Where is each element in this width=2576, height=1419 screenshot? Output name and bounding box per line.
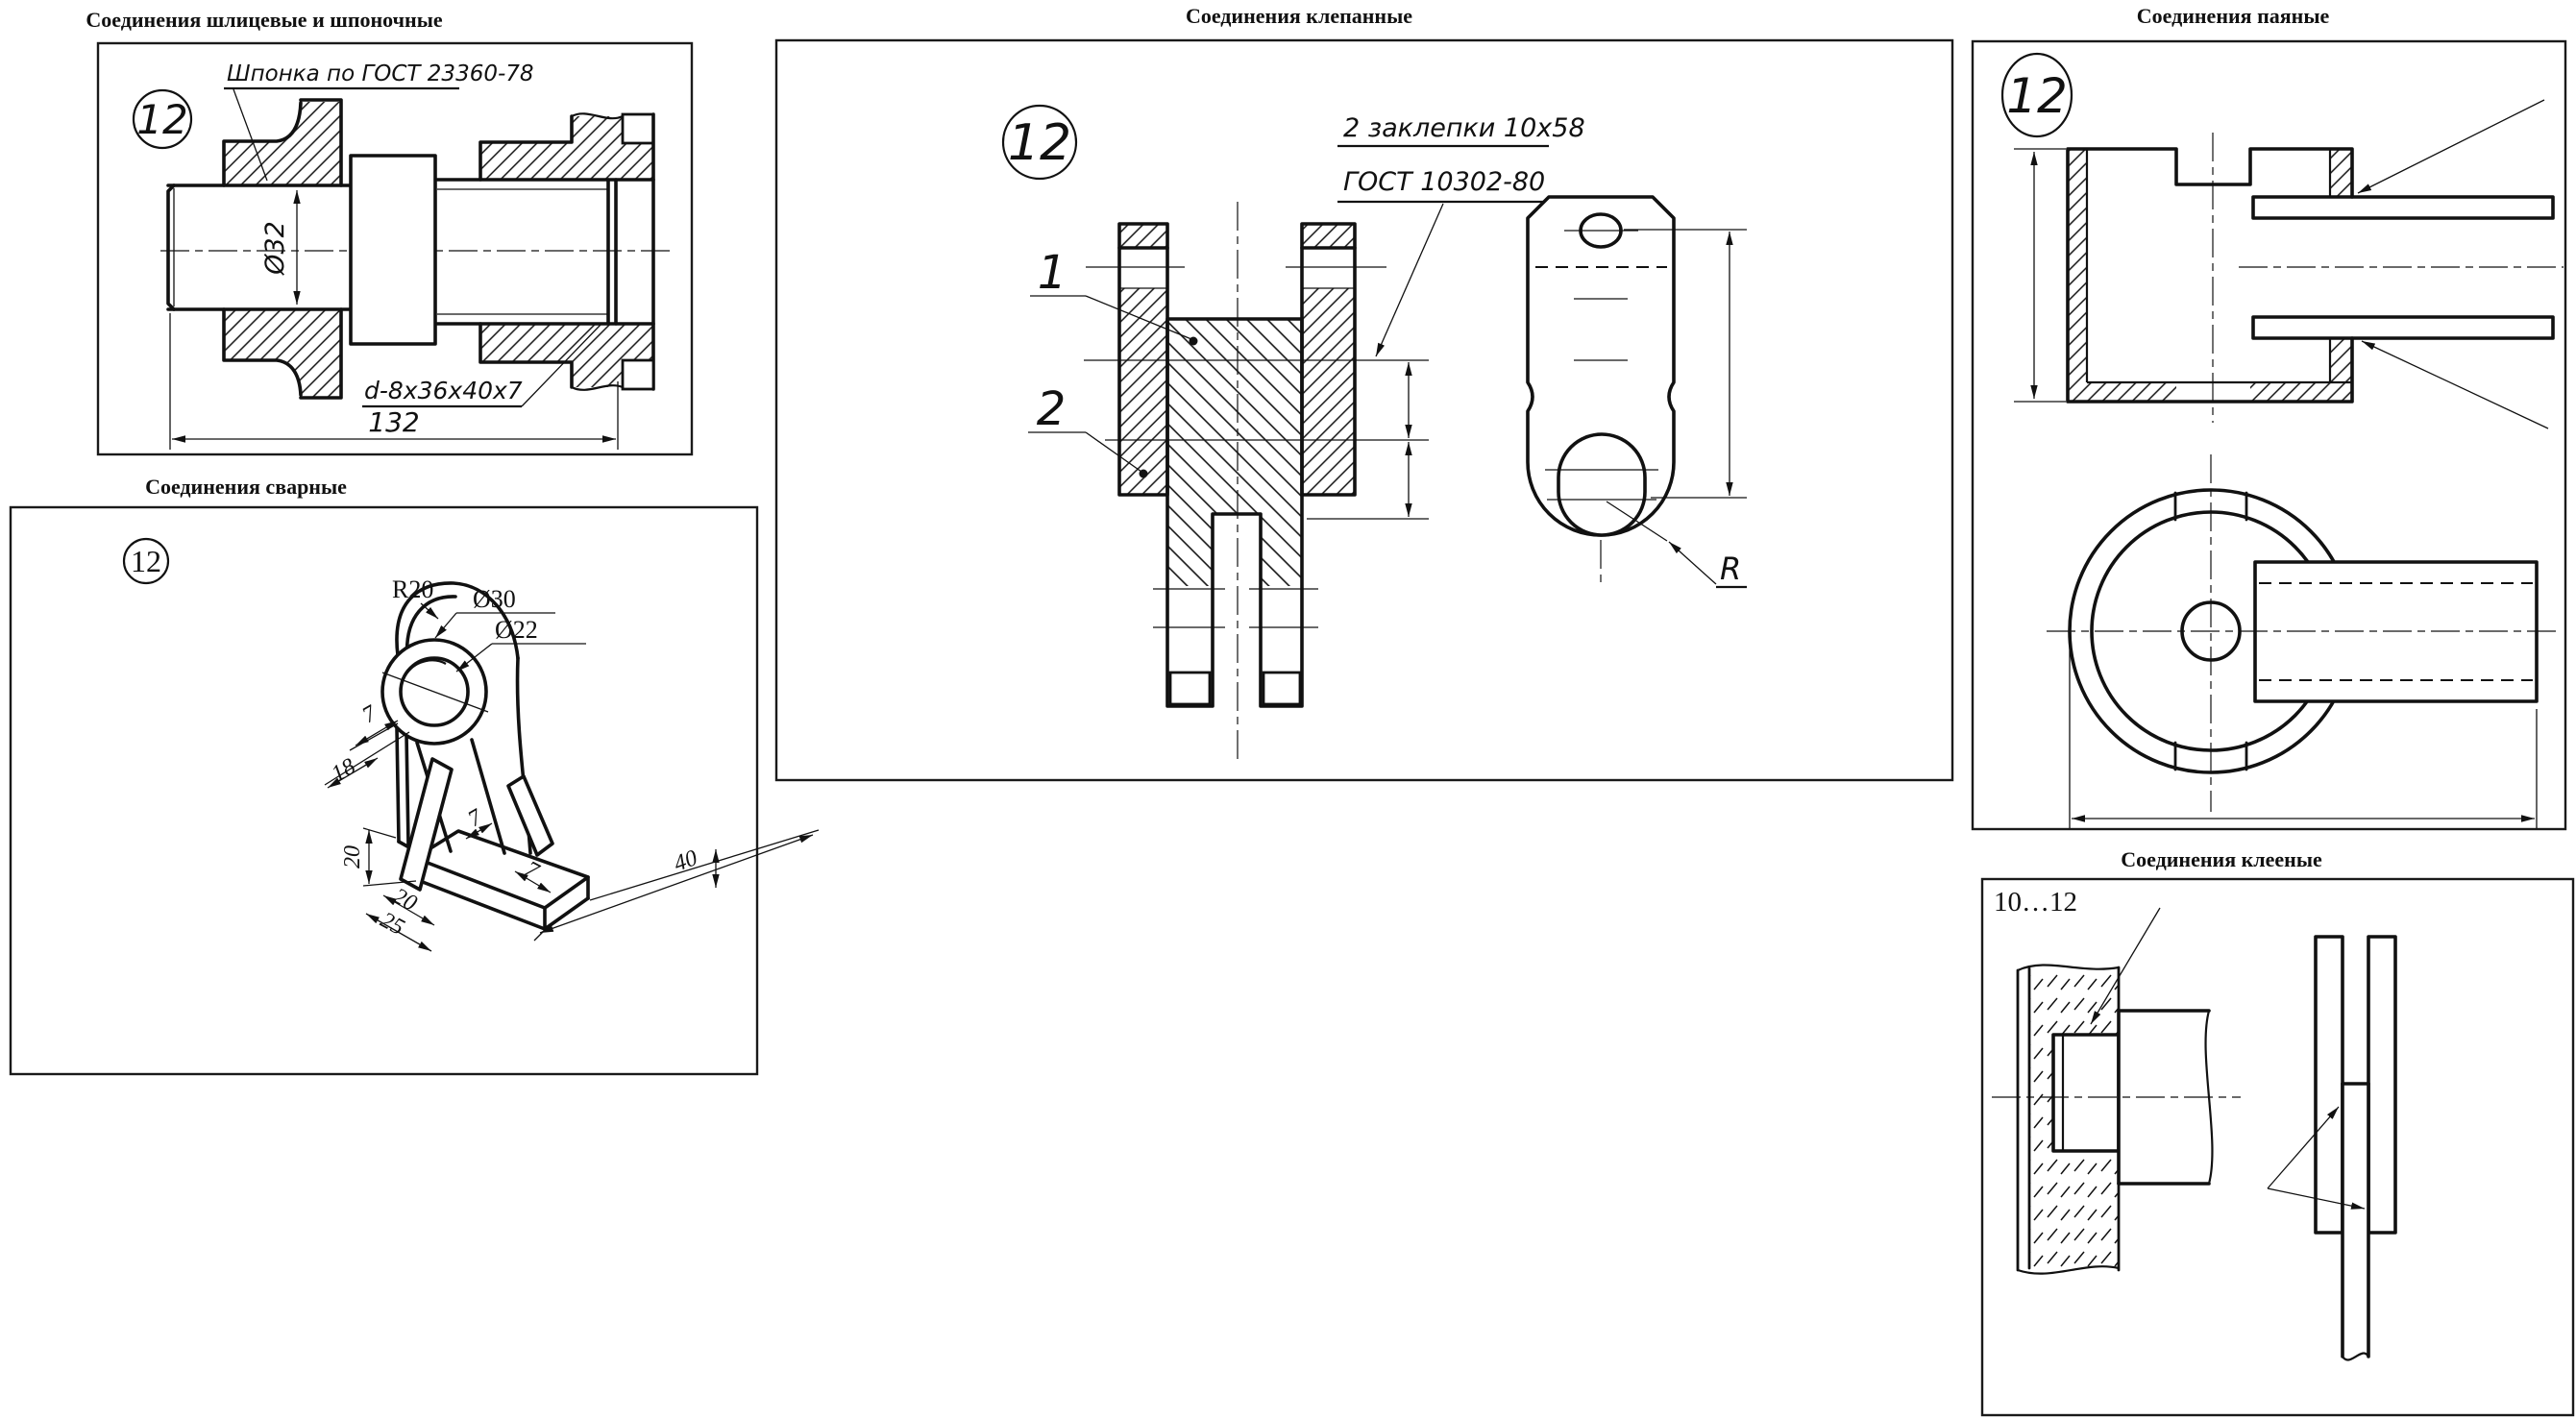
welded-frame [11, 507, 757, 1074]
riveted-front-view: 1 2 [1028, 202, 1429, 759]
welded-variant-badge: 12 [124, 539, 168, 583]
rivet-note-line2: ГОСТ 10302-80 [1343, 167, 1545, 197]
riveted-variant-number: 12 [1008, 114, 1071, 172]
spline-spec-label: d-8x36x40x7 [364, 377, 523, 404]
r20-label: R20 [392, 575, 433, 603]
dim-18-label: 18 [328, 754, 360, 788]
dim-20v-label: 20 [340, 845, 365, 869]
welded-drawing: R20 Ø30 Ø22 7 18 20 20 25 7 7 40 [325, 575, 819, 951]
drawing-sheet: Соединения шлицевые и шпоночные 12 Шпонк… [0, 0, 2576, 1419]
drawing-sheet-svg: Соединения шлицевые и шпоночные 12 Шпонк… [0, 0, 2576, 1419]
riveted-title: Соединения клепанные [1186, 4, 1412, 28]
spline-variant-badge: 12 [134, 90, 191, 148]
riveted-side-view: R [1528, 197, 1747, 587]
rivet-note-line1: 2 заклепки 10x58 [1343, 113, 1585, 143]
key-note-label: Шпонка по ГОСТ 23360-78 [227, 61, 534, 86]
dim-7a-label: 7 [358, 700, 381, 728]
spline-variant-number: 12 [136, 96, 187, 143]
panel-soldered: Соединения паяные 12 [1973, 4, 2565, 829]
welded-title: Соединения сварные [145, 475, 347, 499]
d30-label: Ø30 [473, 585, 516, 613]
soldered-variant-number: 12 [2006, 68, 2068, 124]
soldered-variant-badge: 12 [2002, 54, 2072, 136]
panel-glued: Соединения клееные 10…12 [1982, 847, 2573, 1415]
spline-title: Соединения шлицевые и шпоночные [86, 8, 443, 32]
spline-drawing: Ø32 d-8x36x40x7 132 [160, 100, 670, 450]
glued-title: Соединения клееные [2121, 847, 2322, 871]
part2-label: 2 [1037, 382, 1067, 436]
glued-lap-view [2268, 937, 2395, 1359]
soldered-front-view [2047, 454, 2561, 828]
soldered-title: Соединения паяные [2137, 4, 2330, 28]
diameter-dim-label: Ø32 [260, 221, 290, 276]
panel-welded: Соединения сварные 12 R20 Ø30 [11, 475, 819, 1074]
panel-riveted: Соединения клепанные 12 2 заклепки 10x58… [776, 4, 1952, 780]
glued-shaft-view [1992, 908, 2241, 1274]
glued-variant-note: 10…12 [1994, 887, 2077, 917]
welded-variant-number: 12 [131, 544, 161, 578]
rivet-radius-label: R [1720, 550, 1741, 587]
riveted-frame [776, 40, 1952, 780]
soldered-section-view [2014, 100, 2564, 428]
length-dim-label: 132 [368, 406, 419, 438]
dim-40-label: 40 [671, 845, 700, 877]
panel-spline: Соединения шлицевые и шпоночные 12 Шпонк… [86, 8, 692, 454]
d22-label: Ø22 [495, 616, 538, 644]
part1-label: 1 [1038, 246, 1067, 300]
riveted-variant-badge: 12 [1003, 106, 1076, 179]
